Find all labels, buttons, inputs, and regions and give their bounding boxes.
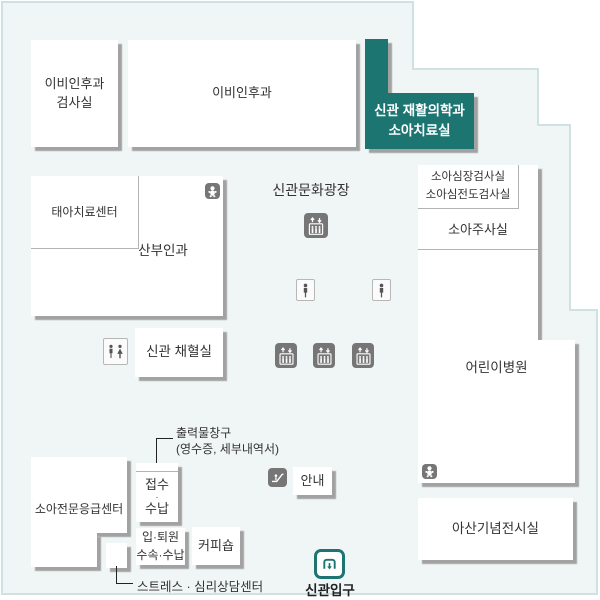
printout-callout-line	[156, 438, 157, 463]
printout-callout-line	[156, 438, 173, 439]
room-ent: 이비인후과	[128, 40, 356, 147]
room-label: 산부인과	[103, 242, 223, 261]
stress-callout-line	[116, 566, 117, 584]
room-label: 소아심장검사실	[431, 169, 505, 187]
room-injection-label: 소아주사실	[418, 221, 538, 239]
person-icon	[372, 279, 391, 301]
room-obgyn: 태아치료센터 산부인과	[31, 176, 223, 316]
baby-icon	[205, 183, 220, 199]
room-admission: 입·퇴원 수속·수납	[136, 528, 185, 565]
baby-icon	[422, 464, 437, 479]
room-label: 소아심전도검사실	[426, 187, 511, 205]
room-label: 커피숍	[198, 537, 234, 555]
room-emergency-center: 소아전문응급센터	[31, 457, 127, 533]
printout-sublabel: (영수증, 세부내역서)	[176, 440, 279, 457]
room-rehab-highlight: 신관 재활의학과 소아치료실	[365, 93, 474, 149]
room-label: 소아전문응급센터	[31, 501, 127, 518]
plaza-label: 신관문화광장	[251, 180, 371, 200]
room-emergency-center-lower	[31, 533, 97, 567]
elevator-icon	[352, 343, 374, 368]
room-fetal-center: 태아치료센터	[31, 176, 139, 249]
room-cardiac-labs: 소아심장검사실 소아심전도검사실	[418, 165, 519, 209]
elevator-icon	[275, 343, 297, 368]
printout-window-strip	[136, 463, 178, 472]
restroom-icon	[103, 338, 128, 365]
room-coffee-shop: 커피숍	[192, 527, 240, 565]
room-label: 신관 채혈실	[146, 343, 212, 362]
room-label: 이비인후과	[212, 84, 272, 102]
room-blood-lab: 신관 채혈실	[135, 328, 223, 377]
room-label: 어린이병원	[418, 359, 575, 378]
room-label: 안내	[301, 472, 325, 490]
room-info-desk: 안내	[293, 467, 332, 495]
room-label: 태아치료센터	[51, 203, 117, 222]
person-icon	[296, 279, 315, 301]
room-memorial-hall: 아산기념전시실	[418, 498, 573, 560]
room-label: 신관 재활의학과	[374, 101, 465, 121]
room-label: 검사실	[57, 94, 93, 112]
room-label: 수속·수납	[136, 547, 184, 564]
room-ent-exam: 이비인후과 검사실	[31, 40, 118, 147]
divider-line	[418, 249, 538, 250]
elevator-icon	[313, 343, 335, 368]
room-rehab-highlight-arm	[365, 39, 388, 94]
entrance-label: 신관입구	[302, 579, 358, 599]
room-children-top: 소아심장검사실 소아심전도검사실 소아주사실	[418, 165, 538, 340]
room-label: 이비인후과	[45, 75, 105, 93]
room-label: 수납	[145, 500, 169, 518]
printout-label: 출력물창구	[176, 424, 231, 441]
stress-callout-line	[116, 583, 133, 584]
room-reception: 접수 · 수납	[136, 463, 178, 522]
stress-center-label: 스트레스 · 심리상담센터	[137, 576, 263, 595]
room-stress-center-box	[106, 543, 127, 568]
room-label: 아산기념전시실	[452, 520, 539, 539]
elevator-icon	[304, 213, 328, 238]
room-children-hospital: 어린이병원	[418, 340, 575, 483]
room-label: 입·퇴원	[142, 529, 179, 546]
room-label: 소아치료실	[388, 121, 450, 141]
entrance-icon	[314, 549, 345, 579]
escalator-icon	[268, 468, 287, 487]
